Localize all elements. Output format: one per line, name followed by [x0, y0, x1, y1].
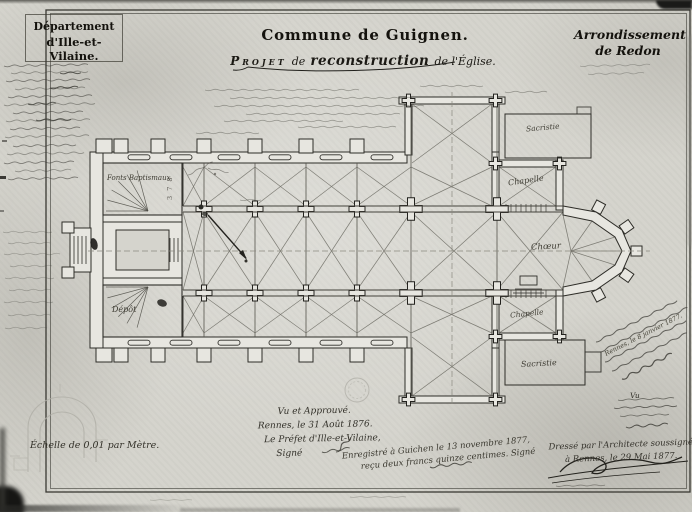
label-sacristie-sud: Sacristie — [521, 358, 557, 369]
label-depot: Dépôt — [112, 305, 136, 314]
label-fonts-baptismaux: Fonts Baptismaux — [107, 174, 171, 182]
margin-note-date: Rennes, le 8 janvier 1877. — [602, 312, 683, 359]
arrondissement-line1: Arrondissement — [574, 27, 682, 43]
arrondissement-box: Arrondissement de Redon — [574, 27, 682, 59]
label-choeur: Chœur — [531, 241, 561, 253]
commune-title: Commune de Guignen. — [240, 26, 490, 44]
stamp — [345, 378, 369, 402]
margin-note: Rennes, le 8 janvier 1877. — [602, 312, 683, 359]
project-word: Projet — [230, 54, 286, 68]
ghost-sketch — [10, 384, 108, 472]
department-box: Département d'Ille-et-Vilaine. — [25, 14, 123, 62]
scale-note: Échelle de 0,01 par Mètre. — [30, 440, 159, 451]
vu-note: Vu — [630, 391, 640, 400]
department-line1: Département — [26, 20, 122, 33]
project-tail: de l'Église. — [434, 55, 495, 68]
sacristie-north-room — [505, 114, 591, 158]
project-de: de — [292, 55, 306, 68]
project-subtitle: Projet de reconstruction de l'Église. — [218, 50, 508, 69]
scanned-plan-sheet: Rennes, le 8 janvier 1877. 3 7 8 Départe… — [0, 0, 692, 512]
project-reconstruction: reconstruction — [310, 53, 429, 69]
arrondissement-line2: de Redon — [574, 43, 682, 59]
department-line2: d'Ille-et-Vilaine. — [26, 35, 122, 63]
architect-note: Dressé par l'Architecte soussigné à Renn… — [548, 436, 692, 466]
